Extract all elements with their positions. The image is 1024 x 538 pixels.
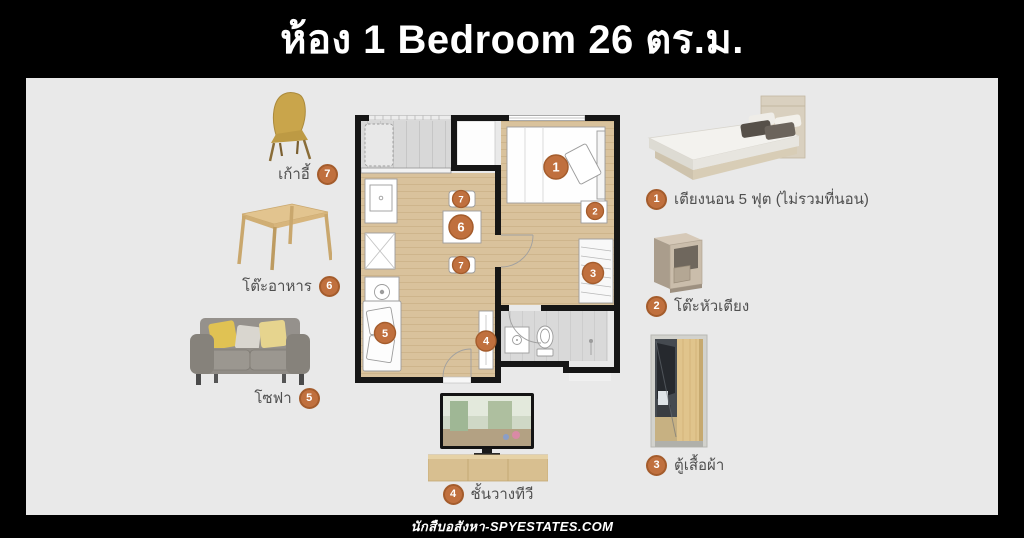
page-title: ห้อง 1 Bedroom 26 ตร.ม. [280,7,744,71]
bed-number-badge: 1 [646,189,667,210]
closet-area [457,121,495,167]
title-bar: ห้อง 1 Bedroom 26 ตร.ม. [0,0,1024,78]
entrance-threshold [443,377,471,383]
bedside-table-image [648,228,708,294]
bed-label: เตียงนอน 5 ฟุต (ไม่รวมที่นอน) [674,187,869,211]
dining-table-image [236,198,332,272]
content-panel: เก้าอี้ 7 โต๊ะอาหาร 6 [26,78,998,515]
legend-wardrobe: 3 ตู้เสื้อผ้า [646,453,724,477]
legend-chair: เก้าอี้ 7 [248,162,368,186]
svg-text:7: 7 [458,195,463,206]
svg-text:7: 7 [458,261,463,272]
legend-sofa: โซฟา 5 [232,386,342,410]
sofa-number-badge: 5 [299,388,320,409]
dining-table-label: โต๊ะอาหาร [242,274,312,298]
wardrobe-image [645,333,717,457]
bedside-table-label: โต๊ะหัวเตียง [674,294,749,318]
svg-text:1: 1 [552,160,559,175]
shower-symbol [589,339,593,343]
tv-stand-image [428,393,548,485]
chair-number-badge: 7 [317,164,338,185]
floorplan: 1 2 3 4 5 6 7 7 [355,115,620,385]
sofa-label: โซฟา [254,386,291,410]
footer-bar: นักสืบอสังหา-SPYESTATES.COM [0,515,1024,538]
wardrobe-number-badge: 3 [646,455,667,476]
balcony-rail [367,116,451,121]
outside-step [569,373,611,381]
svg-text:6: 6 [457,220,464,235]
svg-text:3: 3 [590,268,596,280]
wardrobe-label: ตู้เสื้อผ้า [674,453,724,477]
chair-image [258,90,330,164]
svg-text:2: 2 [592,207,597,218]
chair-label: เก้าอี้ [278,162,310,186]
sofa-image [188,306,312,390]
balcony-slider [361,168,451,173]
bed-image [645,92,813,188]
footer-credit: นักสืบอสังหา-SPYESTATES.COM [411,516,614,537]
legend-dining-table: โต๊ะอาหาร 6 [231,274,351,298]
infographic-page: ห้อง 1 Bedroom 26 ตร.ม. เก้าอี้ 7 โต๊ะอ [0,0,1024,538]
bedside-number-badge: 2 [646,296,667,317]
washer-symbol [365,124,393,166]
svg-text:4: 4 [483,336,490,348]
svg-text:5: 5 [382,328,388,340]
tv-stand-number-badge: 4 [443,484,464,505]
tv-stand-label: ชั้นวางทีวี [471,482,534,506]
legend-bedside-table: 2 โต๊ะหัวเตียง [646,294,749,318]
legend-bed: 1 เตียงนอน 5 ฟุต (ไม่รวมที่นอน) [646,187,869,211]
dining-table-number-badge: 6 [319,276,340,297]
legend-tv-stand: 4 ชั้นวางทีวี [428,482,548,506]
